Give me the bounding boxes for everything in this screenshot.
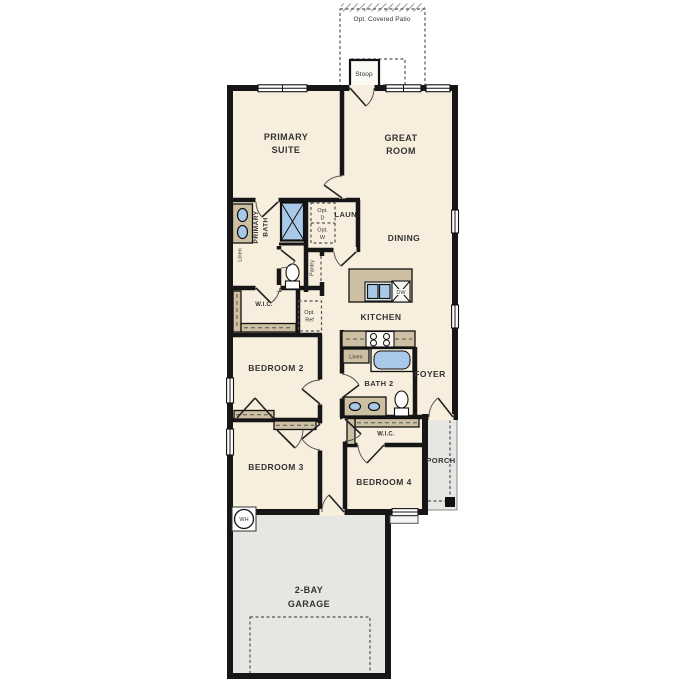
- dishwasher-label: DW: [396, 290, 406, 296]
- great-room-label-line1: GREAT: [384, 133, 417, 143]
- primary-bath-label-line2: BATH: [263, 217, 270, 236]
- window-dining-right: [452, 210, 459, 233]
- bedroom4-label: BEDROOM 4: [356, 477, 412, 487]
- primary-suite-label-line2: SUITE: [272, 145, 301, 155]
- bath2-label: BATH 2: [364, 379, 393, 388]
- primary-shower: [281, 203, 304, 241]
- window-bedroom4-front: [392, 509, 418, 516]
- window-greatroom-rear-1: [386, 85, 421, 92]
- bedroom4-exterior-step: [390, 516, 418, 524]
- stoop-label: Stoop: [355, 71, 373, 78]
- opt-dryer-label-line1: Opt.: [317, 208, 328, 214]
- window-bedroom2-left: [227, 378, 234, 403]
- wic-primary-label: W.I.C.: [255, 302, 273, 308]
- window-primary-suite: [258, 85, 307, 92]
- great-room-label-line2: ROOM: [386, 146, 416, 156]
- opt-ref-label-line1: Opt.: [304, 310, 315, 316]
- window-foyer-right: [452, 305, 459, 328]
- floor-plan-drawing: Opt. Covered Patio Stoop PRIMARY SUITE G…: [0, 0, 687, 687]
- porch-column: [445, 497, 455, 507]
- linen-primary-label: Linen: [238, 248, 244, 261]
- bath2-tub: [371, 349, 413, 372]
- porch-label: PORCH: [426, 456, 455, 465]
- island-sink-basin-2: [380, 285, 391, 299]
- kitchen-counter: [342, 331, 415, 347]
- primary-bath-label-line1: PRIMARY: [253, 210, 260, 243]
- range: [366, 332, 394, 348]
- opt-washer-label-line2: W: [320, 235, 326, 241]
- primary-suite-label-line1: PRIMARY: [264, 132, 308, 142]
- bath2-toilet: [395, 391, 409, 416]
- laundry-label: LAUN.: [334, 210, 359, 219]
- water-heater-label: WH: [239, 517, 248, 523]
- patio-label: Opt. Covered Patio: [353, 16, 410, 23]
- garage-label-line1: 2-BAY: [295, 585, 323, 595]
- pantry-label: Pantry: [310, 260, 316, 276]
- primary-sink-1: [238, 209, 248, 222]
- floor-plan-page: Opt. Covered Patio Stoop PRIMARY SUITE G…: [0, 0, 687, 687]
- bedroom3-closet-shelf: [274, 421, 316, 430]
- window-greatroom-rear-2: [426, 85, 450, 92]
- opt-dryer-label-line2: D: [321, 216, 325, 222]
- foyer-label: FOYER: [414, 369, 446, 379]
- opt-washer-label-line1: Opt.: [317, 228, 328, 234]
- island-sink-basin-1: [368, 285, 379, 299]
- garage-label-line2: GARAGE: [288, 599, 330, 609]
- bath2-sink-1: [350, 403, 361, 411]
- wic-bedroom4-label: W.I.C.: [377, 432, 395, 438]
- kitchen-label: KITCHEN: [361, 312, 402, 322]
- patio-hatch-edge: [341, 4, 425, 12]
- bedroom2-label: BEDROOM 2: [248, 363, 304, 373]
- primary-sink-2: [238, 226, 248, 239]
- primary-toilet: [286, 264, 300, 289]
- linen-bath2-label: Linen: [349, 355, 362, 361]
- bedroom3-label: BEDROOM 3: [248, 462, 304, 472]
- dining-label: DINING: [388, 233, 420, 243]
- window-bedroom3-left: [227, 429, 234, 455]
- kitchen-island: [349, 269, 412, 302]
- opt-ref-label-line2: Ref: [305, 318, 314, 324]
- bath2-sink-2: [369, 403, 380, 411]
